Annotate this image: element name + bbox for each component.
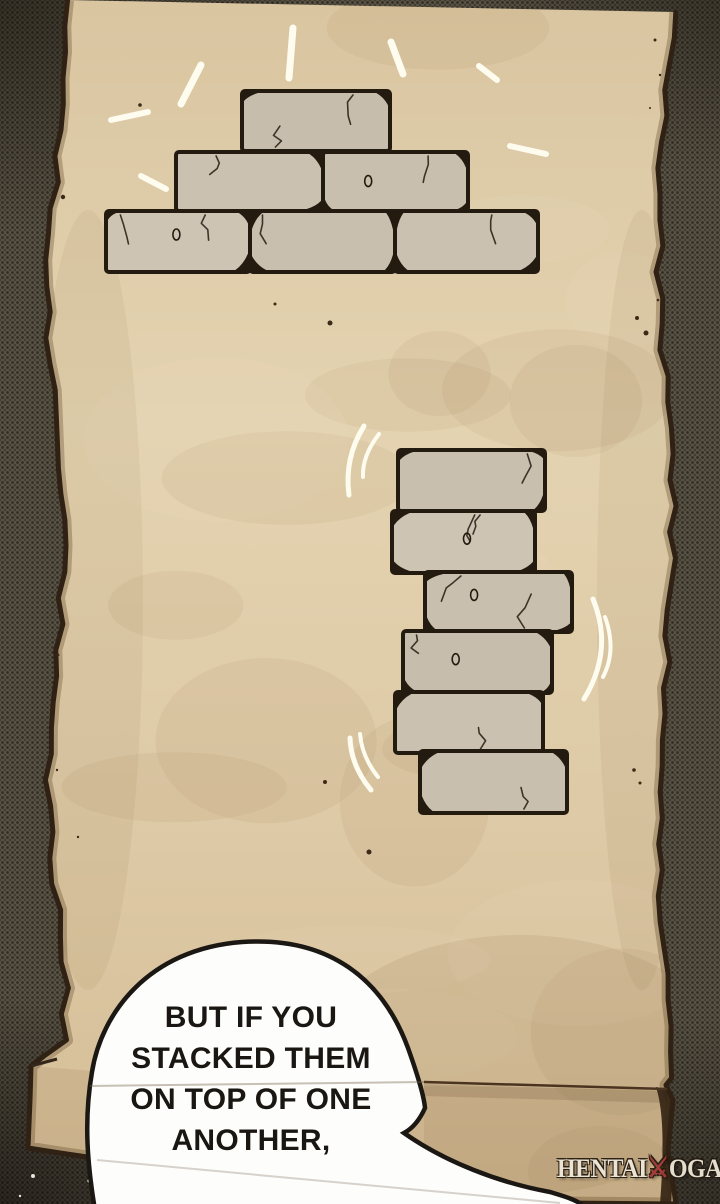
crossed-swords-icon: ⚔: [647, 1153, 669, 1183]
dust-speck: [19, 1195, 21, 1197]
ink-speck: [323, 780, 327, 784]
brick: [242, 91, 390, 151]
brick-face: [176, 152, 323, 211]
brick: [176, 152, 323, 211]
watermark-suffix: OGA: [669, 1154, 720, 1183]
ink-speck: [635, 316, 639, 320]
brick-face: [395, 211, 538, 272]
brick-stack: [392, 450, 572, 813]
brick: [420, 751, 567, 813]
brick-face: [420, 751, 567, 813]
ink-speck: [138, 103, 142, 107]
ink-speck: [56, 769, 58, 771]
ink-speck: [639, 782, 642, 785]
ink-speck: [644, 331, 649, 336]
ink-speck: [367, 850, 372, 855]
brick: [425, 572, 572, 632]
parchment-shadow: [597, 210, 687, 990]
brick-face: [395, 692, 543, 753]
dust-speck: [31, 1174, 35, 1178]
ink-speck: [657, 299, 660, 302]
brick: [395, 211, 538, 272]
brick: [398, 450, 545, 511]
parchment-mottle: [162, 431, 413, 525]
ink-speck: [632, 768, 636, 772]
brick: [395, 692, 543, 753]
ink-speck: [654, 39, 657, 42]
brick: [106, 211, 250, 272]
ink-speck: [77, 836, 79, 838]
brick-face: [425, 572, 572, 632]
brick-face: [242, 91, 390, 151]
brick: [323, 152, 468, 211]
brick-face: [403, 631, 552, 693]
brick: [250, 211, 395, 272]
brick: [403, 631, 552, 693]
ink-speck: [328, 321, 333, 326]
speech-bubble-text: BUT IF YOU STACKED THEM ON TOP OF ONE AN…: [115, 997, 387, 1161]
brick-face: [323, 152, 468, 211]
ink-speck: [649, 107, 651, 109]
watermark: HENTAI⚔OGA: [557, 1151, 720, 1185]
watermark-prefix: HENTAI: [557, 1154, 647, 1183]
ink-speck: [61, 195, 65, 199]
brick: [392, 511, 535, 573]
ink-speck: [274, 303, 277, 306]
ink-speck: [659, 74, 661, 76]
sparkle-ray: [289, 28, 293, 78]
ink-speck: [57, 654, 60, 657]
brick-face: [250, 211, 395, 272]
